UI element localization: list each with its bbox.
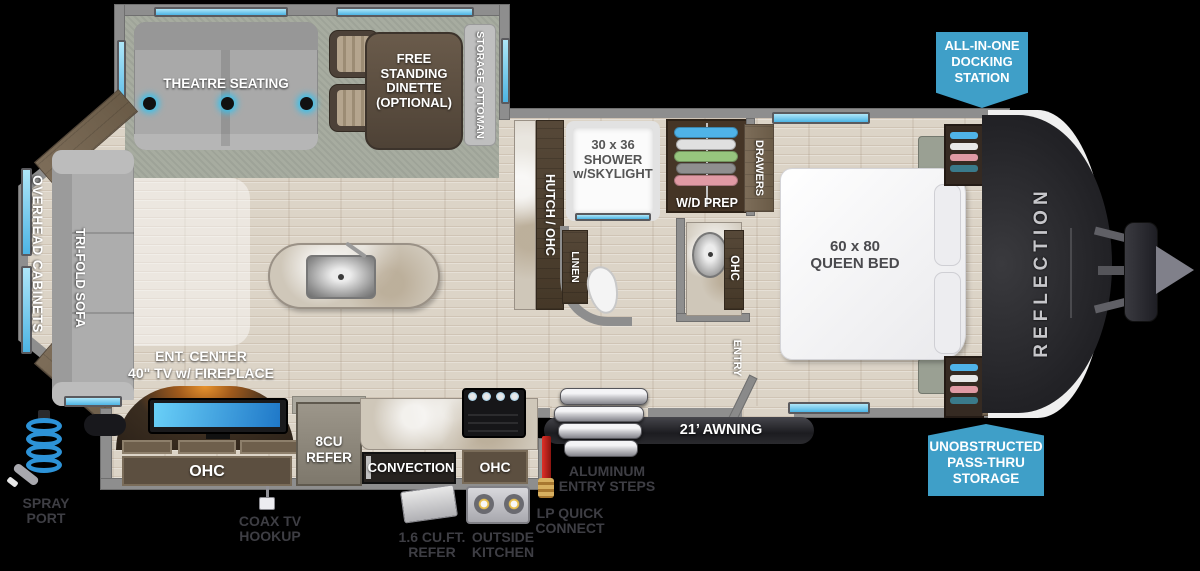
hanger-blue <box>674 127 738 138</box>
front-cap-accent-line <box>1070 228 1072 318</box>
lp-quick-connect-hose <box>542 436 551 480</box>
hanger-green <box>674 151 738 162</box>
wardrobe-clothes <box>950 132 978 139</box>
passthru-storage-callout: UNOBSTRUCTED PASS-THRU STORAGE <box>928 424 1044 496</box>
spray-nozzle-tip <box>6 476 18 488</box>
hutch-counter <box>514 120 536 310</box>
wardrobe-clothes <box>950 165 978 172</box>
island-sink-drain <box>338 274 344 280</box>
wd-prep-label: W/D PREP <box>666 196 748 210</box>
bed-pillow-bottom <box>934 272 961 354</box>
ent-center-label: ENT. CENTER 40" TV w/ FIREPLACE <box>104 348 298 382</box>
entry-label: ENTRY <box>729 329 745 387</box>
bedroom-window-bottom <box>788 402 870 414</box>
slide-window-right <box>501 38 510 104</box>
theatre-cupholder <box>300 97 313 110</box>
drawers-label: DRAWERS <box>751 126 767 210</box>
coax-label: COAX TV HOOKUP <box>218 514 322 544</box>
slide-window-1 <box>154 7 288 17</box>
outside-kitchen-label: OUTSIDE KITCHEN <box>452 530 554 560</box>
wardrobe-clothes <box>950 154 978 161</box>
hanger-white <box>676 139 736 150</box>
stove-grate <box>468 408 518 432</box>
rear-bumper <box>84 414 126 436</box>
ent-center-shelf <box>122 440 172 454</box>
hutch-label: HUTCH / OHC <box>542 135 558 295</box>
theatre-seating-label: THEATRE SEATING <box>142 76 310 91</box>
lp-quick-connect-fitting <box>538 478 554 498</box>
theatre-seat-back <box>134 22 318 50</box>
awning-label: 21’ AWNING <box>656 422 786 438</box>
brand-logo: REFLECTION <box>1034 152 1050 392</box>
refer-8cu-label: 8CU REFER <box>296 434 362 465</box>
linen-label: LINEN <box>567 235 583 299</box>
ent-center-shelf <box>240 440 298 454</box>
propane-cover <box>1124 222 1158 322</box>
vanity-sink-drain <box>708 252 713 257</box>
trifold-sofa-arm-top <box>52 150 134 174</box>
stove-knob <box>482 392 491 401</box>
cooktop-burner <box>474 494 494 514</box>
cooktop-burner <box>504 494 524 514</box>
rear-overhead-cabinets-label: OVERHEAD CABINETS <box>29 164 45 344</box>
docking-station-callout: ALL-IN-ONE DOCKING STATION <box>936 32 1028 108</box>
bedroom-window-top <box>772 112 870 124</box>
entry-step <box>560 388 648 405</box>
dinette-label: FREE STANDING DINETTE (OPTIONAL) <box>365 52 463 110</box>
bed-pillow-top <box>934 184 961 266</box>
ent-center-shelf <box>178 440 236 454</box>
ent-ohc: OHC <box>122 456 292 486</box>
stove-knob <box>496 392 505 401</box>
trifold-sofa-back <box>52 150 72 406</box>
entry-step <box>564 440 638 457</box>
steps-label: ALUMINUM ENTRY STEPS <box>544 464 670 494</box>
hanger-gray <box>676 163 736 174</box>
wardrobe-clothes <box>950 364 978 371</box>
stove-knob <box>468 392 477 401</box>
wardrobe-clothes <box>950 397 978 404</box>
kitchen-ohc: OHC <box>462 450 528 484</box>
spray-port-label: SPRAY PORT <box>6 496 86 526</box>
theatre-cupholder <box>221 97 234 110</box>
rear-bottom-window <box>64 396 122 407</box>
entry-step <box>554 406 644 422</box>
wardrobe-clothes <box>950 386 978 393</box>
hitch-coupler <box>1156 246 1194 294</box>
stove-knob <box>510 392 519 401</box>
hanger-pink <box>674 175 738 186</box>
wardrobe-clothes <box>950 375 978 382</box>
shower-label: 30 x 36 SHOWER w/SKYLIGHT <box>566 138 660 182</box>
slide-window-2 <box>336 7 474 17</box>
wardrobe-clothes <box>950 143 978 150</box>
outside-refer-door <box>400 484 458 523</box>
tv-screen <box>154 403 280 427</box>
coax-connector <box>259 497 275 510</box>
bath-wall-right <box>676 218 685 322</box>
convection-label: CONVECTION <box>366 452 456 483</box>
rv-floorplan: THEATRE SEATING FREE STANDING DINETTE (O… <box>0 0 1200 571</box>
trifold-sofa-label: TRI-FOLD SOFA <box>72 203 88 353</box>
storage-ottoman-label: STORAGE OTTOMAN <box>472 27 488 143</box>
theatre-cupholder <box>143 97 156 110</box>
shower-glass <box>575 213 651 221</box>
bath-ohc-label: OHC <box>726 245 742 291</box>
queen-bed-label: 60 x 80 QUEEN BED <box>795 238 915 273</box>
spray-hose-coil <box>26 457 62 473</box>
tv-stand <box>206 434 230 439</box>
entry-step <box>558 423 642 439</box>
